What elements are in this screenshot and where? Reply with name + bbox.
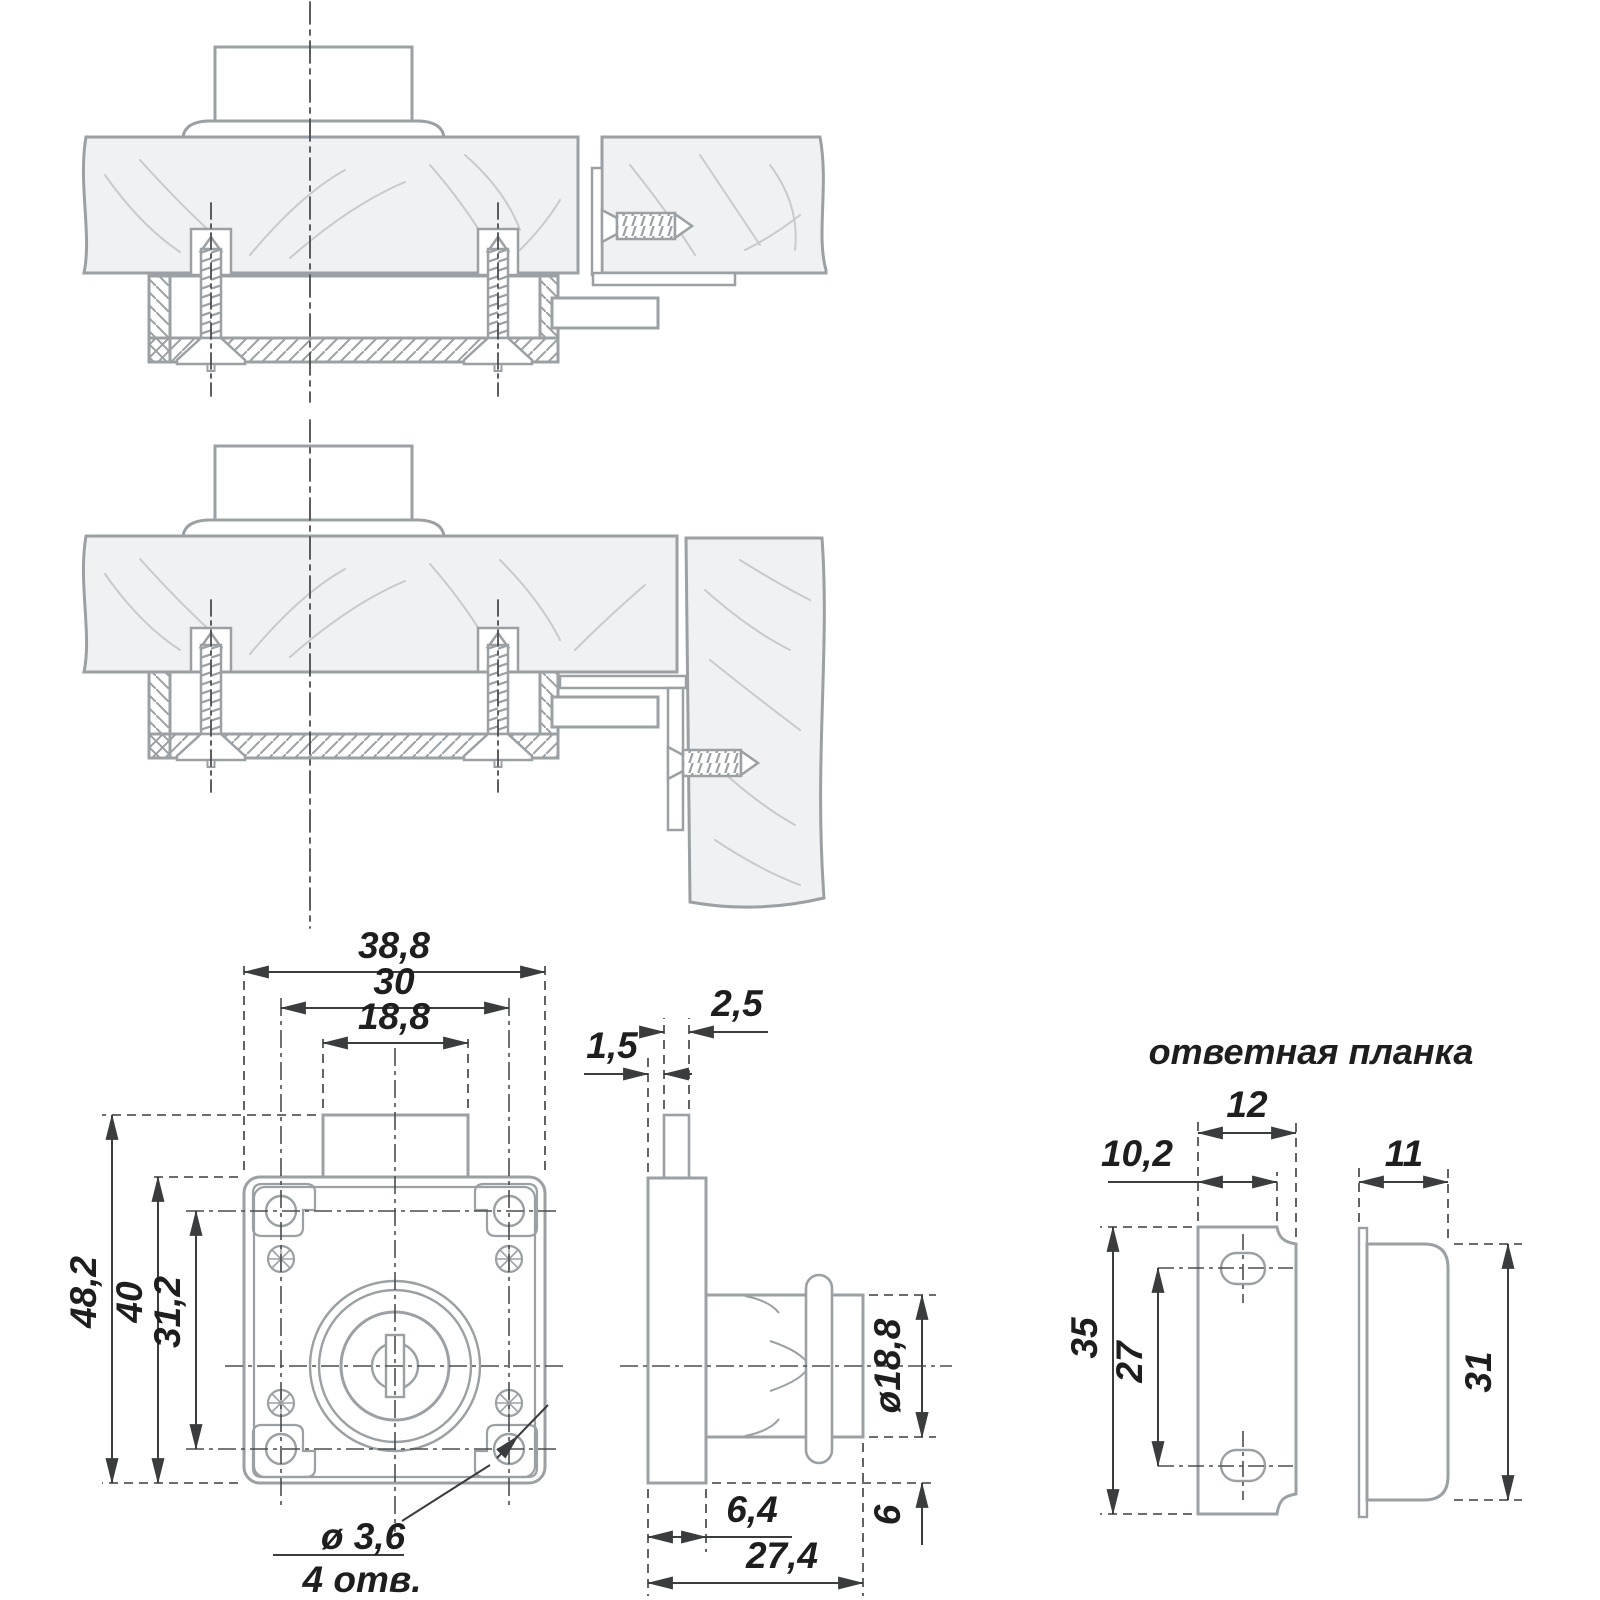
wood-panel-cabinet-vertical (686, 538, 824, 907)
lock-cylinder-flange (183, 121, 444, 137)
strike-plate-title: ответная планка (1149, 1031, 1474, 1072)
strike-plate-edge (592, 168, 602, 275)
dim-plate-thickness: 6,4 (726, 1489, 777, 1530)
lock-cylinder-head (215, 446, 412, 520)
installation-view-horizontal-strike (83, 2, 826, 402)
dim-strike-side-height: 31 (1458, 1351, 1499, 1392)
dim-body-height: 40 (109, 1281, 150, 1324)
dim-mount-hole-count: 4 отв. (302, 1559, 422, 1600)
strike-plate-front-outline (1198, 1227, 1296, 1514)
dim-cam-width: 2,5 (710, 983, 764, 1024)
dim-cam-offset: 1,5 (586, 1025, 639, 1066)
dim-screw-spacing-v: 31,2 (147, 1276, 188, 1348)
dim-strike-inner-width: 10,2 (1101, 1133, 1173, 1174)
dim-strike-depth: 11 (1385, 1133, 1423, 1174)
lock-cylinder-flange (183, 520, 444, 536)
dim-strike-hole-spacing: 27 (1109, 1339, 1150, 1384)
dim-total-height: 48,2 (63, 1256, 104, 1329)
lock-side-view: 2,5 1,5 ø18,8 6 6,4 27,4 (584, 983, 952, 1596)
wood-panel-drawer-front (83, 536, 677, 672)
cam-tab (664, 1115, 689, 1178)
dim-mount-hole-dia: ø 3,6 (321, 1516, 406, 1557)
strike-plate-lip (593, 273, 735, 285)
lock-technical-drawing: 38,8 30 18,8 48,2 40 31,2 ø 3,6 4 отв. (0, 0, 1600, 1600)
dim-strike-height: 35 (1064, 1316, 1105, 1359)
installation-view-angle-strike (83, 420, 824, 928)
latch-bolt (552, 298, 658, 328)
strike-plate-views: ответная планка 12 10,2 35 27 (1064, 1031, 1522, 1517)
dim-cylinder-dia: ø18,8 (867, 1318, 908, 1413)
wood-panel-cabinet-side (602, 137, 826, 273)
dim-strike-width: 12 (1226, 1084, 1268, 1125)
lock-cylinder-head (215, 47, 412, 121)
dim-flange-offset: 6 (867, 1504, 908, 1525)
angle-strike-lip (560, 676, 686, 688)
dim-overall-width: 38,8 (358, 925, 430, 966)
cylinder-flange (806, 1275, 832, 1463)
latch-bolt (552, 697, 658, 727)
dim-neck-width: 18,8 (358, 996, 430, 1037)
dim-total-depth: 27,4 (745, 1535, 818, 1576)
backplate (648, 1178, 706, 1483)
strike-plate-side-body (1367, 1244, 1448, 1500)
lock-front-view: 38,8 30 18,8 48,2 40 31,2 ø 3,6 4 отв. (63, 925, 568, 1600)
